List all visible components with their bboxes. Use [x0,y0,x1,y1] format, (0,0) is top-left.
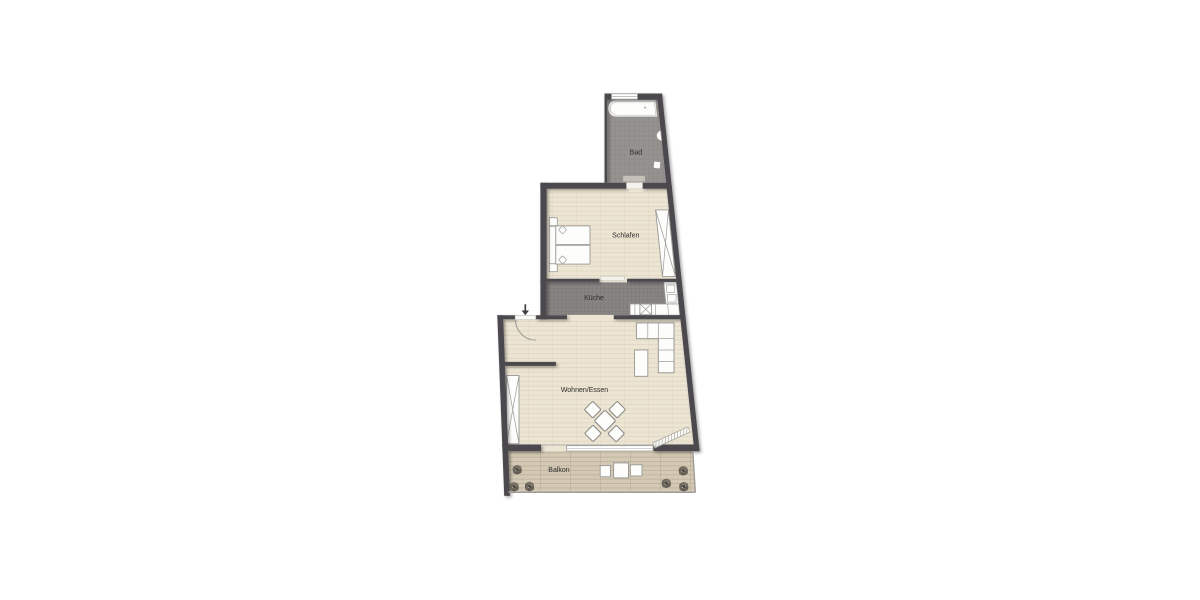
svg-text:Küche: Küche [584,295,604,302]
svg-text:Balkon: Balkon [548,467,570,474]
svg-text:Wohnen/Essen: Wohnen/Essen [561,387,608,394]
svg-text:Bad: Bad [630,149,643,156]
svg-text:Schlafen: Schlafen [612,233,639,240]
